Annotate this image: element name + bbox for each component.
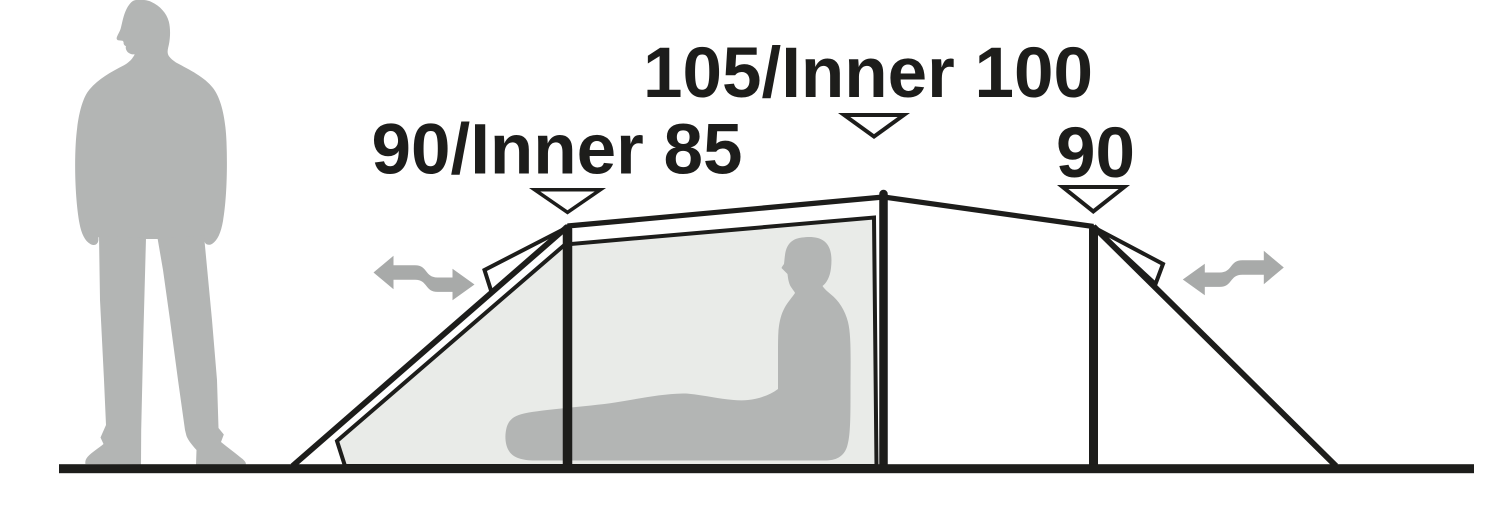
svg-text:105/Inner 100: 105/Inner 100 [643, 34, 1093, 113]
svg-text:90/Inner 85: 90/Inner 85 [372, 111, 743, 190]
svg-text:90: 90 [1056, 114, 1135, 193]
